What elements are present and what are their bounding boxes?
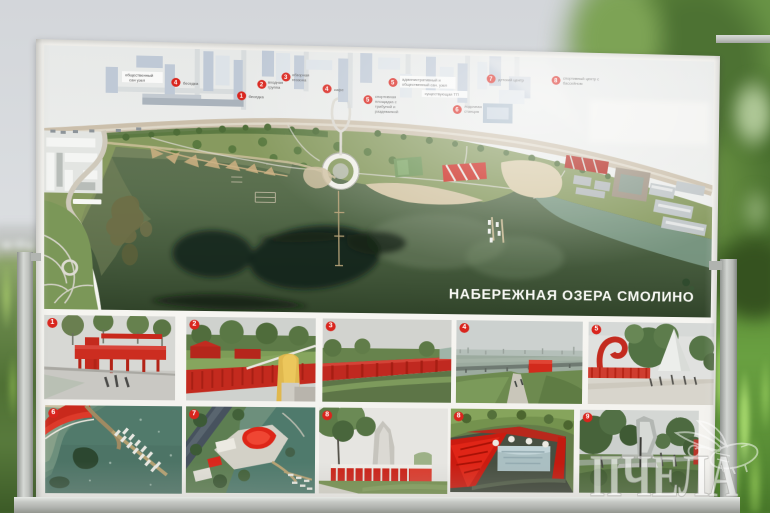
- svg-text:станция: станция: [464, 109, 479, 114]
- svg-text:беседка: беседка: [249, 94, 265, 99]
- svg-text:раздевалкой: раздевалкой: [375, 109, 398, 114]
- svg-text:НАБЕРЕЖНАЯ ОЗЕРА СМОЛИНО: НАБЕРЕЖНАЯ ОЗЕРА СМОЛИНО: [449, 287, 695, 306]
- svg-text:кафе: кафе: [334, 87, 344, 92]
- svg-text:общественный сан. узел: общественный сан. узел: [402, 82, 448, 88]
- svg-text:бассейном: бассейном: [563, 81, 583, 86]
- svg-text:существующая ТП: существующая ТП: [425, 91, 459, 97]
- svg-text:геозона: геозона: [292, 77, 307, 82]
- svg-text:сан узел: сан узел: [129, 77, 146, 82]
- svg-text:беседка: беседка: [183, 81, 199, 86]
- svg-text:группа: группа: [268, 85, 281, 90]
- svg-text:детский центр: детский центр: [498, 77, 525, 82]
